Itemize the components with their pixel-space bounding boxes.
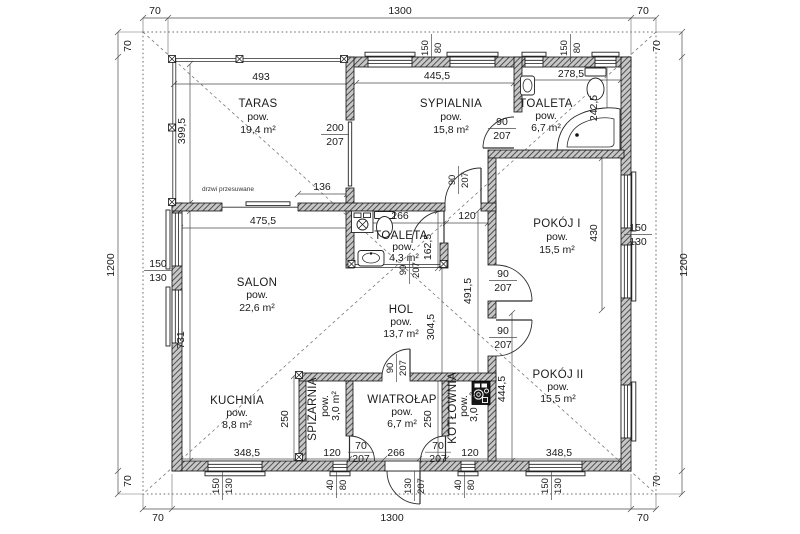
window-right-2 <box>621 242 636 301</box>
room-area: 6,7 m² <box>531 122 561 134</box>
room-area: 6,7 m² <box>387 418 417 430</box>
dim-wiatrolap-height: 250 <box>422 410 434 428</box>
dim-kotlownia-width: 120 <box>461 447 479 459</box>
dim-toaleta-g-width: 278,5 <box>558 68 584 80</box>
dim-left-bottom: 70 <box>122 475 134 487</box>
room-name: SPIŻARNIA <box>306 377 319 440</box>
door-width: 70 <box>432 440 444 452</box>
room-name: POKÓJ II <box>533 368 584 381</box>
window-bottom-kotlownia <box>458 461 478 476</box>
window-height: 80 <box>572 43 583 54</box>
dim-bottom-center: 1300 <box>380 512 404 524</box>
dim-salon-height: 731 <box>175 331 187 349</box>
dim-pokoj2-height: 444,5 <box>496 376 508 402</box>
room-pow: pow. <box>547 381 569 393</box>
window-width: 40 <box>325 480 336 491</box>
room-name: SYPIALNIA <box>420 98 482 110</box>
window-height: 80 <box>466 480 477 491</box>
washing-machine-icon <box>352 211 374 233</box>
window-width: 150 <box>211 478 222 494</box>
dim-salon-width: 475,5 <box>250 215 276 227</box>
window-height: 80 <box>433 43 444 54</box>
door-width: 70 <box>355 440 367 452</box>
window-height: 130 <box>224 478 235 494</box>
room-pow: pow. <box>440 111 462 123</box>
door-height: 207 <box>460 172 471 188</box>
room-area: 15,5 m² <box>540 393 576 405</box>
door-width: 90 <box>497 268 509 280</box>
dim-door-taras: 200 207 <box>321 122 349 148</box>
door-height: 207 <box>398 360 409 376</box>
dim-toaleta-m-height: 162,5 <box>422 234 434 260</box>
washbasin-icon <box>521 76 535 95</box>
dim-sypialnia-width: 445,5 <box>424 70 450 82</box>
dim-hol-top-width: 120 <box>458 210 476 222</box>
dim-right-center: 1200 <box>678 253 690 277</box>
window-top-4 <box>592 52 619 67</box>
door-width: 90 <box>496 116 508 128</box>
dim-door-pokoj2: 90 207 <box>489 325 517 351</box>
room-name: WIATROŁAP <box>367 394 437 406</box>
room-area: 22,6 m² <box>239 302 275 314</box>
window-width: 150 <box>629 222 647 234</box>
room-label-taras: TARAS pow. 19,4 m² <box>239 98 278 136</box>
door-height: 207 <box>352 453 370 465</box>
door-taras-sypialnia <box>348 122 351 186</box>
room-name: KUCHNIA <box>210 395 264 407</box>
door-width: 90 <box>398 265 409 276</box>
door-width: 90 <box>447 175 458 186</box>
dim-hol-height: 304,5 <box>425 314 437 340</box>
room-label-pokoj2: POKÓJ II pow. 15,5 m² <box>533 368 584 405</box>
room-name: TOALETA <box>519 98 572 110</box>
door-height: 207 <box>416 478 427 494</box>
window-left-1 <box>166 210 182 269</box>
dim-taras-width: 493 <box>252 71 270 83</box>
dim-left-top: 70 <box>122 40 134 52</box>
room-pow: pow. <box>535 110 557 122</box>
window-width: 40 <box>453 480 464 491</box>
room-area: 15,8 m² <box>433 124 469 136</box>
room-pow: pow. <box>546 231 568 243</box>
dim-spizarnia-width: 120 <box>323 447 341 459</box>
room-name: HOL <box>389 304 414 316</box>
dim-door-wiatrolap: 90 207 <box>385 354 409 382</box>
room-pow: pow. <box>247 111 269 123</box>
dim-pokoj2-width: 348,5 <box>546 447 572 459</box>
dim-hol-right-height: 491,5 <box>462 278 474 304</box>
dim-toaleta-m-width: 266 <box>391 210 409 222</box>
room-area: 13,7 m² <box>383 328 419 340</box>
washbasin-center-icon <box>358 251 384 267</box>
room-pow: pow. <box>390 316 412 328</box>
door-width: 90 <box>385 363 396 374</box>
dim-toaleta-g-height: 242,5 <box>588 95 600 121</box>
window-width: 150 <box>149 258 167 270</box>
room-label-pokoj1: POKÓJ I pow. 15,5 m² <box>533 217 580 256</box>
room-name: SALON <box>237 277 278 289</box>
sliding-door-label: drzwi przesuwane <box>202 186 254 193</box>
door-width: 90 <box>497 325 509 337</box>
window-height: 130 <box>629 236 647 248</box>
door-height: 207 <box>429 453 447 465</box>
room-name: TARAS <box>239 98 278 110</box>
room-area: 3,0 m² <box>468 392 480 422</box>
door-height: 207 <box>411 262 422 278</box>
sliding-door <box>222 202 298 207</box>
dim-top-right: 70 <box>637 5 649 17</box>
window-height: 130 <box>553 478 564 494</box>
window-width: 150 <box>559 40 570 56</box>
window-bottom-spizarnia <box>330 461 350 476</box>
dim-right-top: 70 <box>651 40 663 52</box>
dim-bottom-right: 70 <box>637 512 649 524</box>
window-top-2 <box>447 52 498 67</box>
dim-entrance-door: 130 207 <box>403 471 427 501</box>
door-width: 200 <box>326 122 344 134</box>
dim-left-center: 1200 <box>105 253 117 277</box>
dim-taras-height: 399,5 <box>176 118 188 144</box>
window-bottom-kuchnia <box>205 461 265 476</box>
room-pow: pow. <box>391 406 413 418</box>
window-bottom-pokoj2 <box>526 461 585 476</box>
dim-door-pokoj1: 90 207 <box>489 268 517 294</box>
window-width: 150 <box>540 478 551 494</box>
window-right-3 <box>621 382 636 441</box>
room-area: 15,5 m² <box>539 244 575 256</box>
dim-wiatrolap-width: 266 <box>387 447 405 459</box>
room-label-spizarnia: SPIŻARNIA pow. 3,0 m² <box>306 377 342 440</box>
door-height: 207 <box>326 136 344 148</box>
door-height: 207 <box>494 339 512 351</box>
room-area: 8,8 m² <box>222 419 252 431</box>
floor-plan-canvas: 70 1300 70 70 1300 70 70 1200 70 70 1200… <box>0 0 800 534</box>
door-width: 130 <box>403 478 414 494</box>
window-top-3 <box>522 52 546 67</box>
window-width: 150 <box>420 40 431 56</box>
room-label-kuchnia: KUCHNIA pow. 8,8 m² <box>210 395 264 431</box>
dim-bottom-left: 70 <box>152 512 164 524</box>
room-label-hol: HOL pow. 13,7 m² <box>383 304 419 340</box>
dim-door-sypialnia-toaleta: 90 207 <box>488 116 516 142</box>
dim-right-bottom: 70 <box>651 475 663 487</box>
room-label-sypialnia: SYPIALNIA pow. 15,8 m² <box>420 98 482 136</box>
room-area: 3,0 m² <box>330 391 342 421</box>
room-name: POKÓJ I <box>533 217 580 230</box>
door-height: 207 <box>494 282 512 294</box>
room-pow: pow. <box>246 289 268 301</box>
dim-taras-opening: 136 <box>313 181 331 193</box>
window-top-1 <box>365 52 415 67</box>
dim-top-center: 1300 <box>388 5 412 17</box>
dim-kuchnia-width: 348,5 <box>234 447 260 459</box>
window-height: 80 <box>338 480 349 491</box>
window-height: 130 <box>149 272 167 284</box>
dim-top-left: 70 <box>149 5 161 17</box>
door-height: 207 <box>493 130 511 142</box>
dim-pokoj1-height: 430 <box>588 224 600 242</box>
room-pow: pow. <box>226 407 248 419</box>
room-label-salon: SALON pow. 22,6 m² <box>237 277 278 314</box>
room-area: 19,4 m² <box>240 124 276 136</box>
dim-kuchnia-height: 250 <box>279 410 291 428</box>
floor-plan-drawing: 70 1300 70 70 1300 70 70 1200 70 70 1200… <box>0 0 800 534</box>
